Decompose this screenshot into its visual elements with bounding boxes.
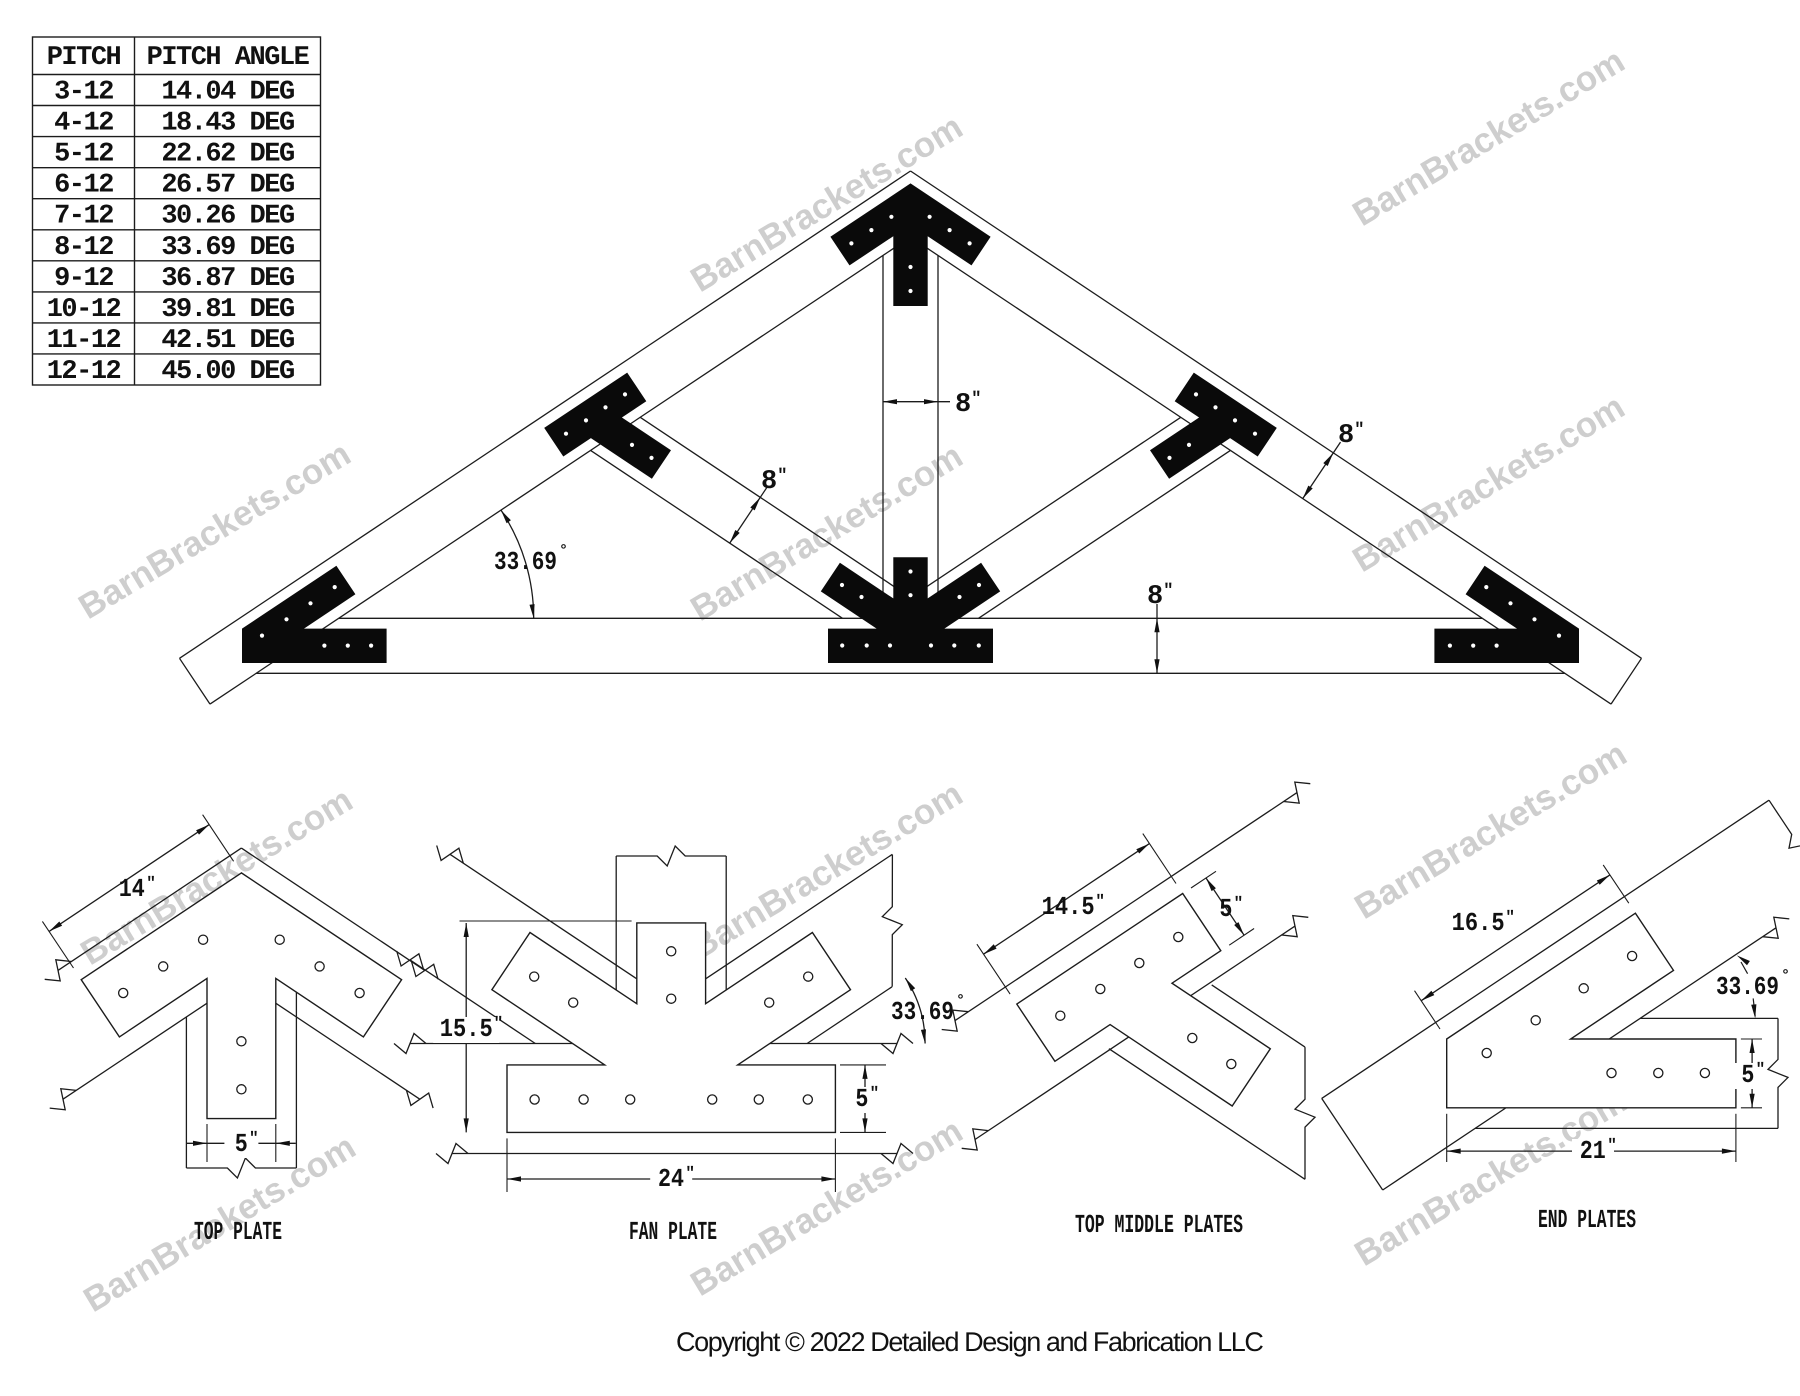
- svg-text:14: 14: [119, 874, 145, 904]
- svg-text:END PLATES: END PLATES: [1538, 1205, 1636, 1235]
- svg-text:14.5: 14.5: [1042, 892, 1095, 922]
- svg-text:″: ″: [494, 1015, 504, 1033]
- svg-text:42.51 DEG: 42.51 DEG: [161, 326, 294, 356]
- svg-text:°: °: [956, 993, 965, 1010]
- svg-text:5-12: 5-12: [54, 140, 113, 170]
- svg-text:5: 5: [235, 1129, 248, 1159]
- svg-text:14.04 DEG: 14.04 DEG: [161, 78, 294, 108]
- svg-text:PITCH: PITCH: [47, 43, 121, 73]
- svg-text:26.57 DEG: 26.57 DEG: [161, 171, 294, 201]
- svg-text:3-12: 3-12: [54, 78, 113, 108]
- svg-text:33.69 DEG: 33.69 DEG: [161, 233, 294, 263]
- svg-text:33.69: 33.69: [494, 547, 557, 577]
- svg-text:22.62 DEG: 22.62 DEG: [161, 140, 294, 170]
- svg-text:9-12: 9-12: [54, 264, 113, 294]
- svg-text:15.5: 15.5: [440, 1014, 493, 1044]
- svg-text:TOP MIDDLE PLATES: TOP MIDDLE PLATES: [1075, 1210, 1243, 1240]
- svg-text:8-12: 8-12: [54, 233, 113, 263]
- svg-text:36.87 DEG: 36.87 DEG: [161, 264, 294, 294]
- svg-text:33.69: 33.69: [1716, 972, 1779, 1002]
- svg-text:6-12: 6-12: [54, 171, 113, 201]
- svg-text:30.26 DEG: 30.26 DEG: [161, 202, 294, 232]
- svg-text:16.5: 16.5: [1452, 908, 1505, 938]
- svg-text:TOP PLATE: TOP PLATE: [194, 1217, 282, 1247]
- svg-text:5: 5: [1219, 894, 1232, 924]
- svg-text:″: ″: [1234, 895, 1244, 913]
- svg-text:24: 24: [658, 1164, 684, 1194]
- svg-text:″: ″: [1505, 909, 1515, 927]
- svg-text:Copyright © 2022 Detailed Desi: Copyright © 2022 Detailed Design and Fab…: [676, 1327, 1263, 1357]
- svg-text:7-12: 7-12: [54, 202, 113, 232]
- svg-text:″: ″: [146, 875, 156, 893]
- svg-text:33.69: 33.69: [891, 997, 954, 1027]
- svg-text:″: ″: [870, 1085, 880, 1103]
- svg-text:°: °: [1781, 968, 1790, 985]
- svg-text:45.00 DEG: 45.00 DEG: [161, 357, 294, 387]
- svg-text:4-12: 4-12: [54, 109, 113, 139]
- svg-text:°: °: [559, 543, 568, 560]
- svg-text:″: ″: [249, 1130, 259, 1148]
- svg-text:18.43 DEG: 18.43 DEG: [161, 109, 294, 139]
- svg-text:″: ″: [1607, 1137, 1617, 1155]
- svg-text:21: 21: [1580, 1136, 1606, 1166]
- svg-text:39.81 DEG: 39.81 DEG: [161, 295, 294, 325]
- svg-text:5: 5: [1741, 1060, 1754, 1090]
- svg-text:12-12: 12-12: [47, 357, 121, 387]
- svg-text:″: ″: [1095, 893, 1105, 911]
- svg-text:″: ″: [685, 1165, 695, 1183]
- svg-text:11-12: 11-12: [47, 326, 121, 356]
- svg-text:5: 5: [855, 1084, 868, 1114]
- svg-text:FAN PLATE: FAN PLATE: [629, 1217, 717, 1247]
- svg-text:10-12: 10-12: [47, 295, 121, 325]
- svg-text:PITCH ANGLE: PITCH ANGLE: [147, 43, 310, 73]
- svg-text:″: ″: [1756, 1061, 1766, 1079]
